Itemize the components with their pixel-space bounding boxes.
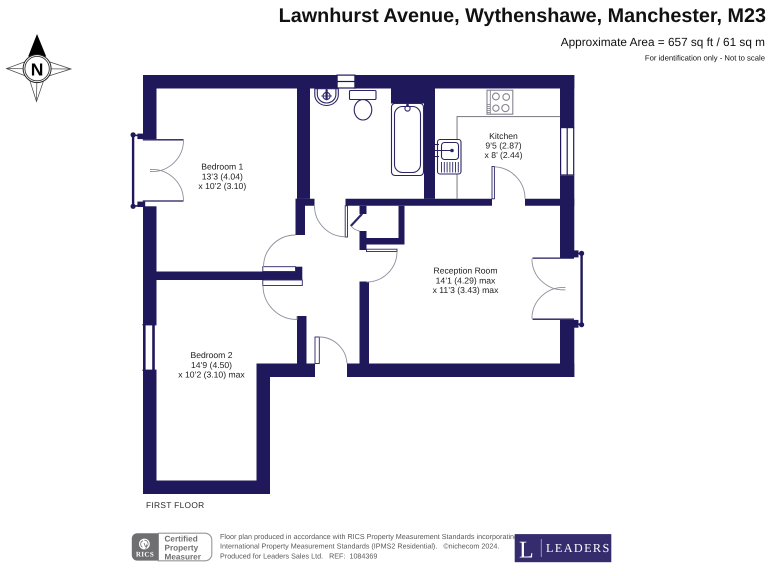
svg-text:Floor plan produced in accorda: Floor plan produced in accordance with R… [220, 532, 518, 541]
svg-text:LEADERS: LEADERS [546, 541, 611, 555]
svg-text:Reception Room: Reception Room [433, 266, 497, 276]
svg-text:Lawnhurst Avenue, Wythenshawe,: Lawnhurst Avenue, Wythenshawe, Mancheste… [279, 5, 766, 27]
svg-text:x 10’2 (3.10) max: x 10’2 (3.10) max [178, 369, 245, 379]
svg-text:L: L [519, 538, 534, 564]
svg-text:International Property Measure: International Property Measurement Stand… [220, 542, 499, 551]
svg-text:For identification only - Not: For identification only - Not to scale [645, 54, 765, 63]
svg-text:Approximate Area = 657 sq ft /: Approximate Area = 657 sq ft / 61 sq m [561, 35, 765, 49]
svg-text:Measurer: Measurer [165, 553, 202, 562]
svg-text:14’9 (4.50): 14’9 (4.50) [191, 360, 232, 370]
svg-text:Kitchen: Kitchen [489, 131, 518, 141]
svg-text:FIRST FLOOR: FIRST FLOOR [146, 500, 205, 510]
svg-text:N: N [31, 60, 44, 80]
svg-text:Bedroom 2: Bedroom 2 [190, 350, 232, 360]
svg-text:Bedroom 1: Bedroom 1 [201, 162, 243, 172]
svg-text:Certified: Certified [165, 535, 198, 544]
svg-text:13’3 (4.04): 13’3 (4.04) [202, 171, 243, 181]
svg-text:Produced for Leaders Sales Ltd: Produced for Leaders Sales Ltd. REF: 108… [220, 551, 377, 560]
svg-text:x 11’3 (3.43) max: x 11’3 (3.43) max [433, 285, 499, 295]
svg-text:14’1 (4.29) max: 14’1 (4.29) max [436, 275, 496, 285]
svg-text:9’5 (2.87): 9’5 (2.87) [485, 140, 521, 150]
svg-text:x 8’ (2.44): x 8’ (2.44) [485, 150, 523, 160]
svg-text:RICS: RICS [136, 551, 154, 559]
svg-text:Property: Property [165, 544, 199, 553]
svg-text:x 10’2 (3.10): x 10’2 (3.10) [198, 181, 246, 191]
